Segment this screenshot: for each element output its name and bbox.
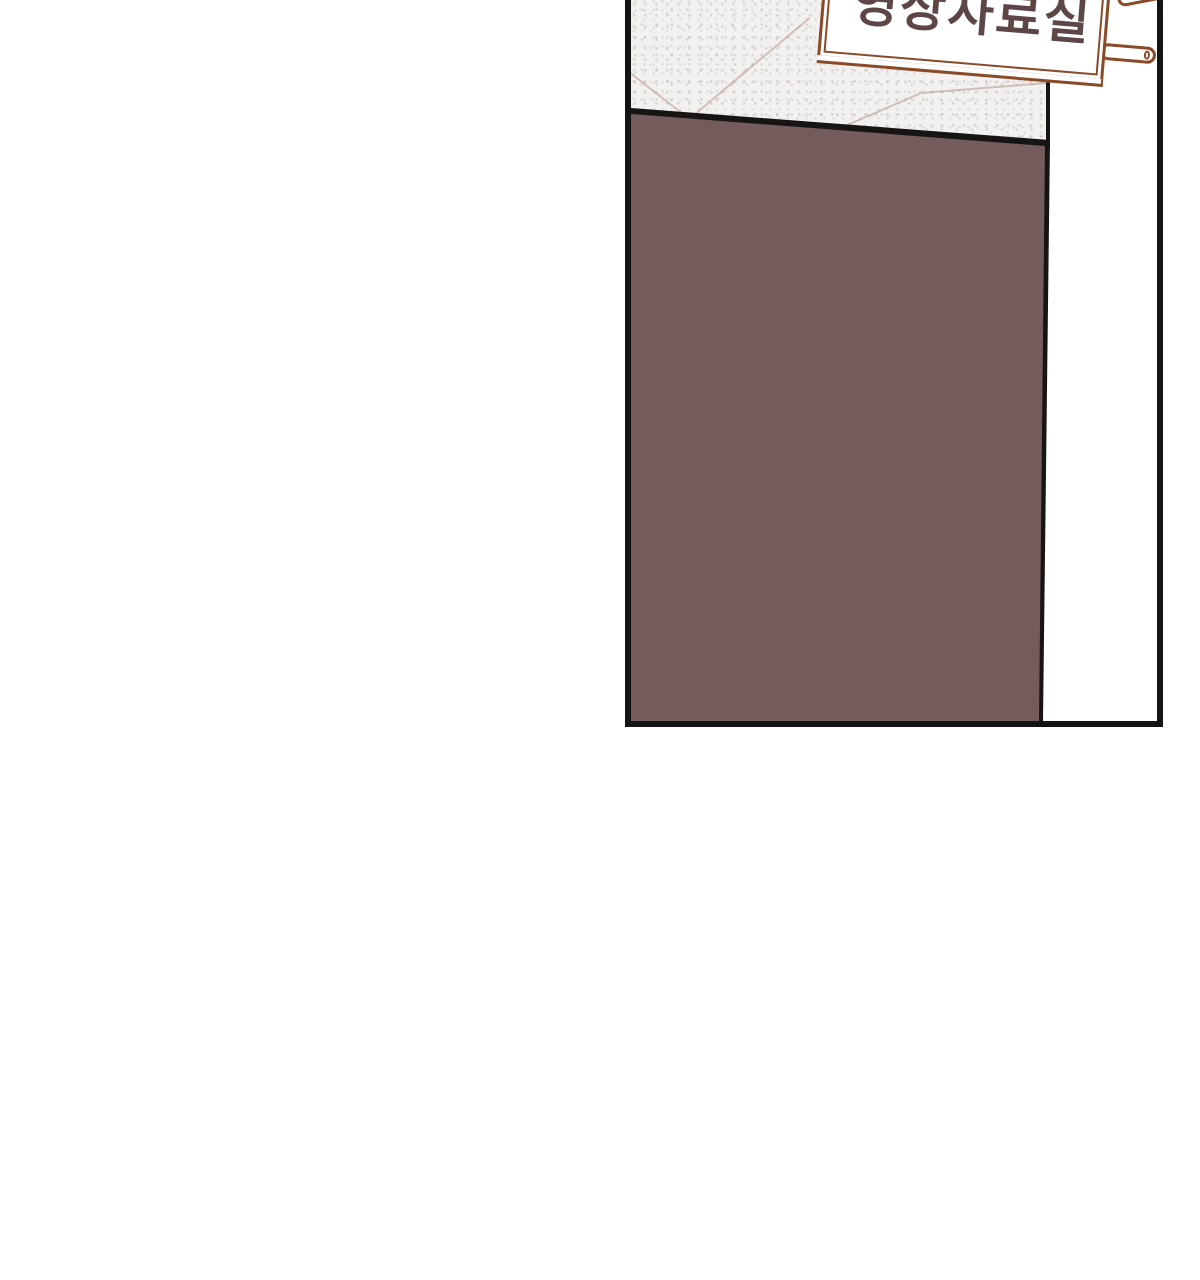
comic-panel: 영상자료실	[625, 0, 1163, 727]
door-edge-line	[1046, 80, 1050, 148]
rod-cap-icon	[1144, 50, 1151, 59]
room-sign-label: 영상자료실	[823, 0, 1107, 49]
sign-mount-rod-top-icon	[1116, 0, 1163, 8]
tile-groove	[920, 82, 1048, 94]
sign-mount-rod-icon	[1099, 43, 1156, 65]
tile-groove	[690, 17, 811, 119]
